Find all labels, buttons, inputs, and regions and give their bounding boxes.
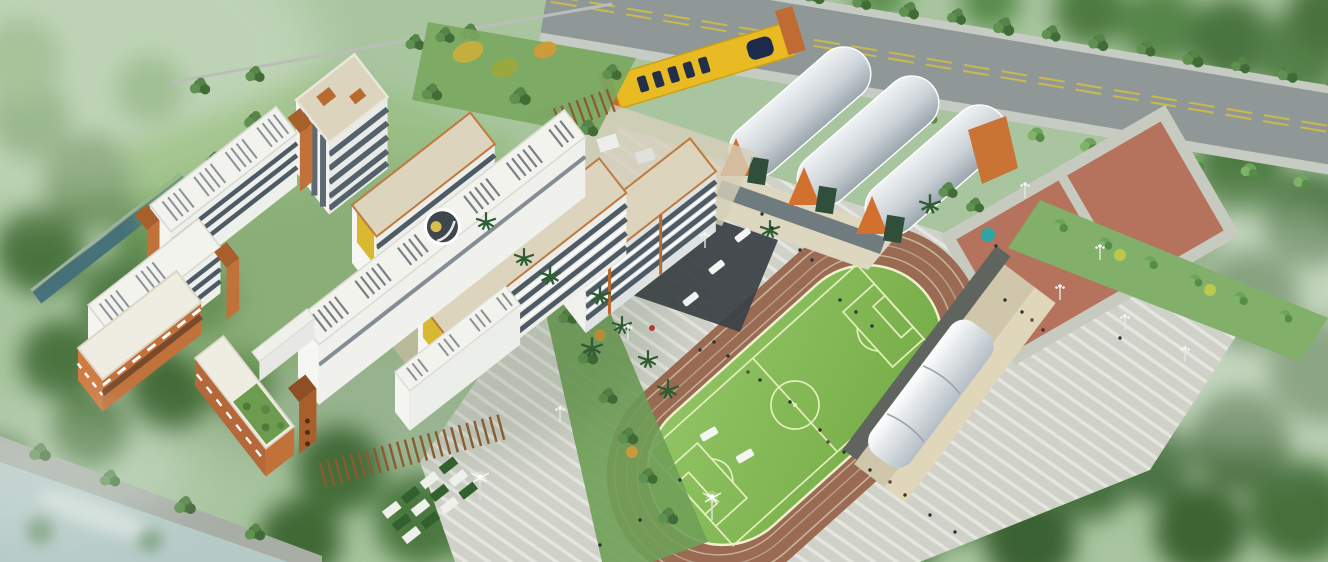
teal-tree [981,228,995,242]
campus-aerial-rendering [0,0,1328,562]
